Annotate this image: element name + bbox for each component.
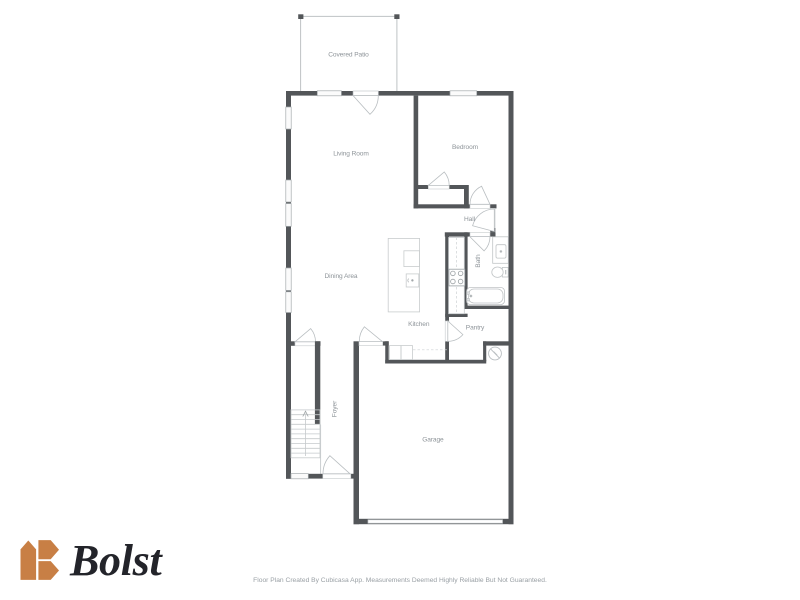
- svg-text:Bedroom: Bedroom: [452, 144, 479, 151]
- svg-text:Floor Plan Created By Cubicasa: Floor Plan Created By Cubicasa App. Meas…: [253, 577, 547, 584]
- svg-text:Foyer: Foyer: [332, 400, 339, 417]
- svg-text:Covered Patio: Covered Patio: [328, 52, 369, 59]
- svg-text:Kitchen: Kitchen: [408, 321, 430, 328]
- svg-text:Garage: Garage: [422, 436, 444, 443]
- svg-text:Hall: Hall: [464, 216, 476, 223]
- svg-text:Living Room: Living Room: [333, 151, 369, 158]
- svg-text:Dining Area: Dining Area: [325, 273, 358, 280]
- svg-text:Pantry: Pantry: [466, 324, 485, 331]
- svg-text:Bolst: Bolst: [69, 536, 163, 585]
- svg-text:Bath: Bath: [475, 254, 482, 268]
